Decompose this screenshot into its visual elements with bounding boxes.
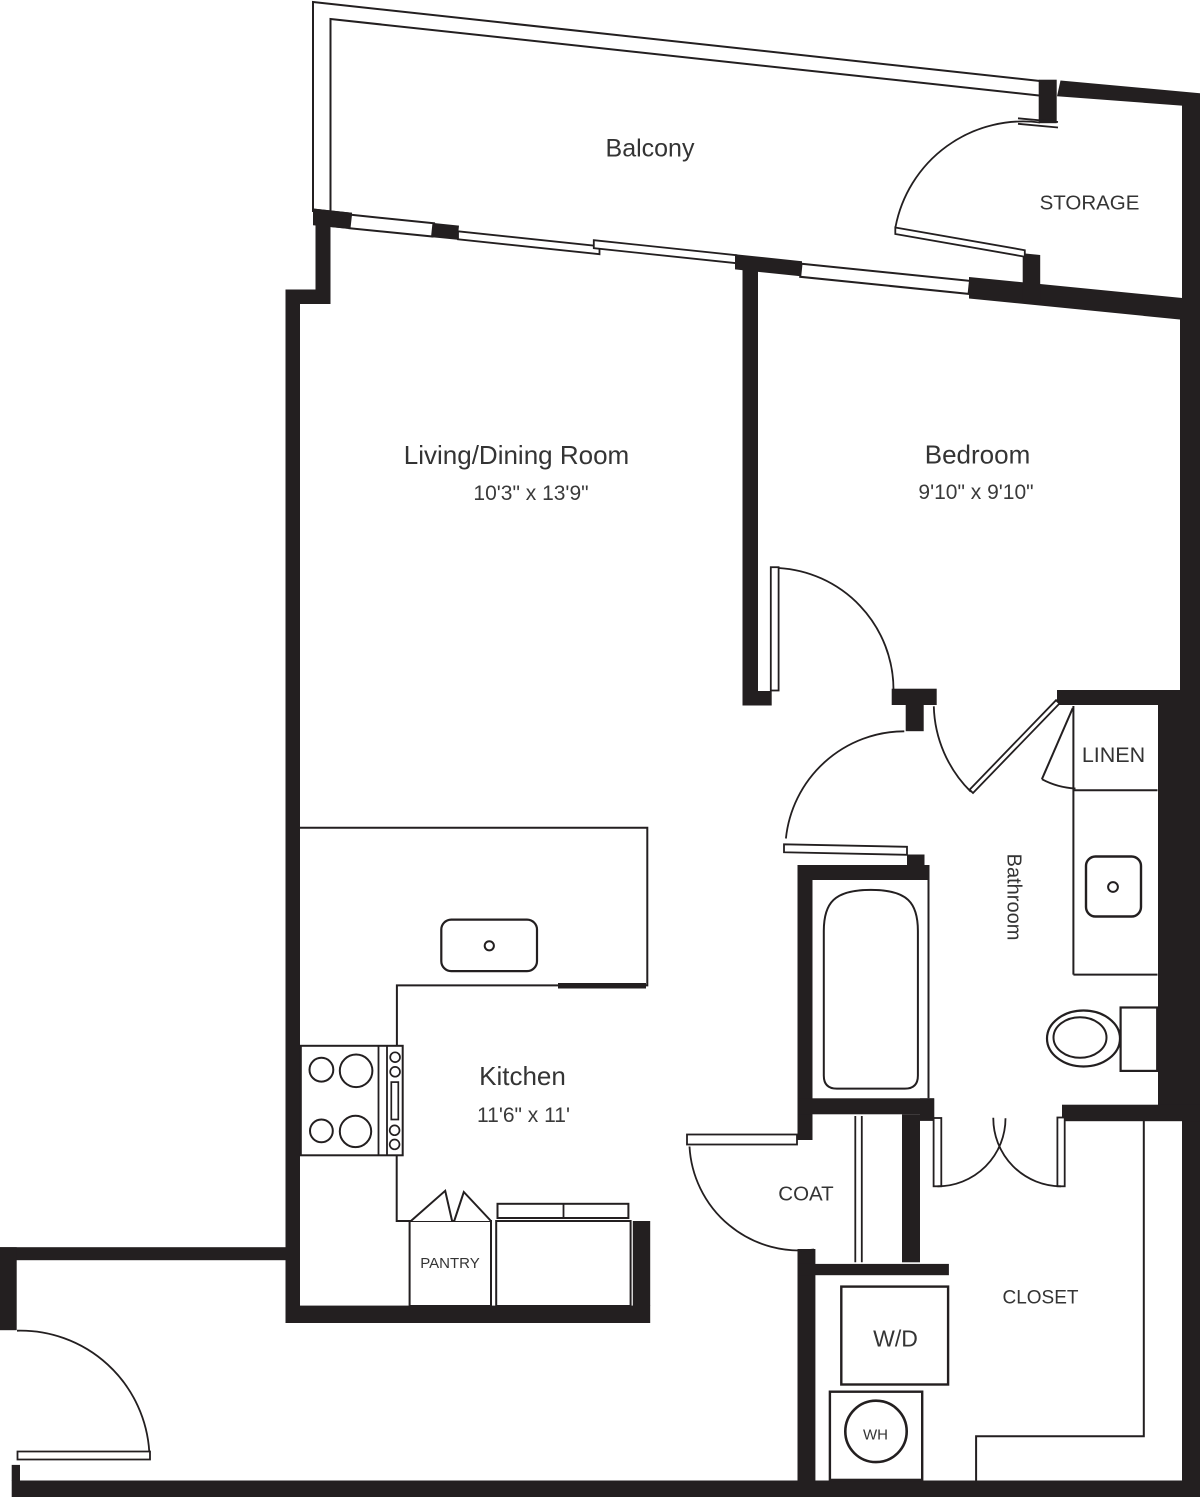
svg-text:W/D: W/D <box>873 1326 918 1352</box>
svg-text:WH: WH <box>863 1427 888 1444</box>
svg-text:CLOSET: CLOSET <box>1002 1287 1078 1308</box>
svg-text:STORAGE: STORAGE <box>1040 192 1140 215</box>
svg-text:Balcony: Balcony <box>606 135 695 163</box>
svg-text:PANTRY: PANTRY <box>420 1255 479 1272</box>
svg-text:COAT: COAT <box>778 1183 834 1206</box>
svg-text:Kitchen: Kitchen <box>479 1061 566 1091</box>
svg-text:11'6" x 11': 11'6" x 11' <box>477 1104 570 1127</box>
svg-text:10'3" x 13'9": 10'3" x 13'9" <box>473 482 588 505</box>
svg-text:Bedroom: Bedroom <box>925 439 1031 469</box>
svg-text:Bathroom: Bathroom <box>1003 854 1025 941</box>
svg-text:9'10" x 9'10": 9'10" x 9'10" <box>918 481 1033 504</box>
svg-text:Living/Dining Room: Living/Dining Room <box>404 440 629 470</box>
svg-text:LINEN: LINEN <box>1082 743 1145 767</box>
